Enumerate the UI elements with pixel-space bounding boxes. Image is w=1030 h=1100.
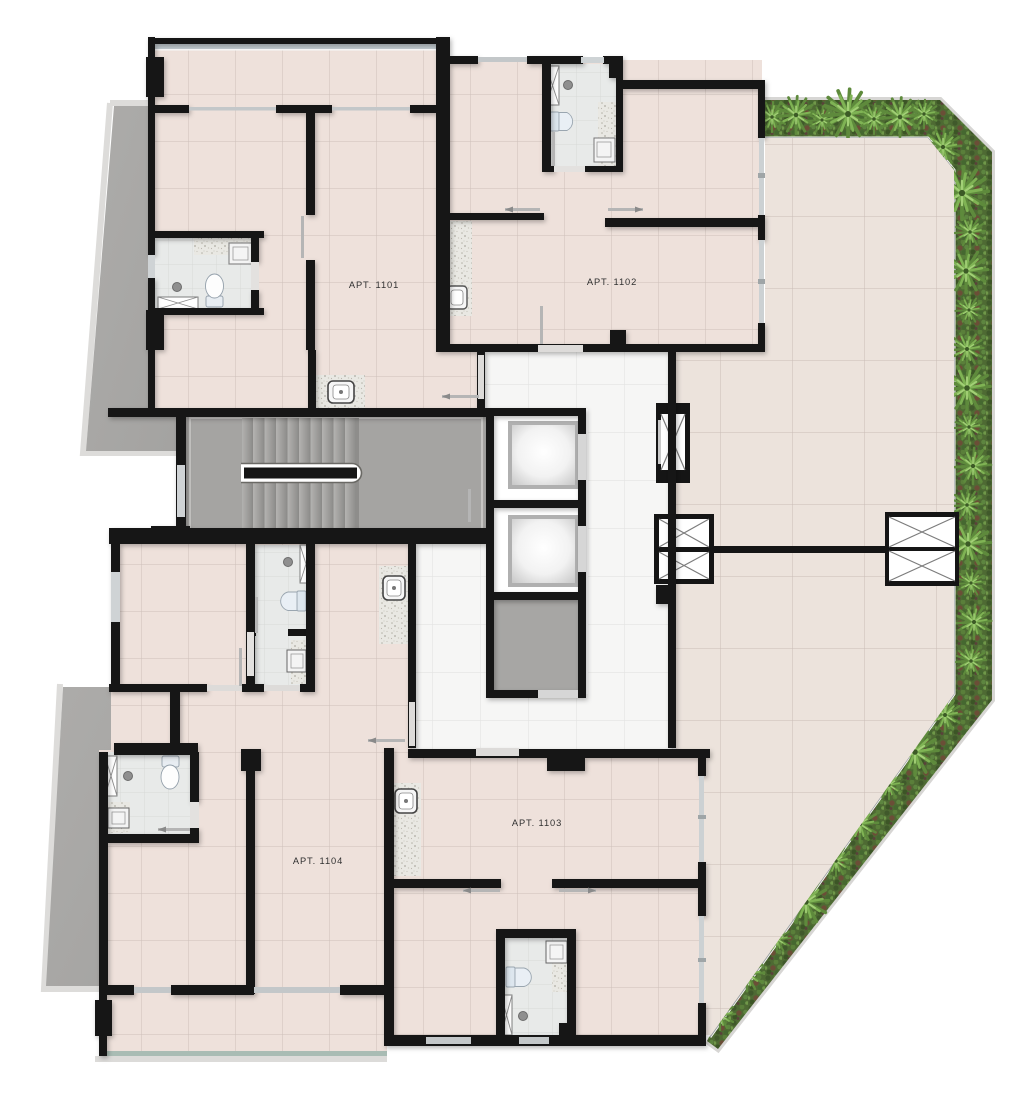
svg-text:APT. 1103: APT. 1103 bbox=[512, 818, 562, 828]
svg-text:APT. 1104: APT. 1104 bbox=[293, 856, 343, 866]
svg-text:APT. 1101: APT. 1101 bbox=[349, 280, 399, 290]
svg-text:APT. 1102: APT. 1102 bbox=[587, 277, 637, 287]
